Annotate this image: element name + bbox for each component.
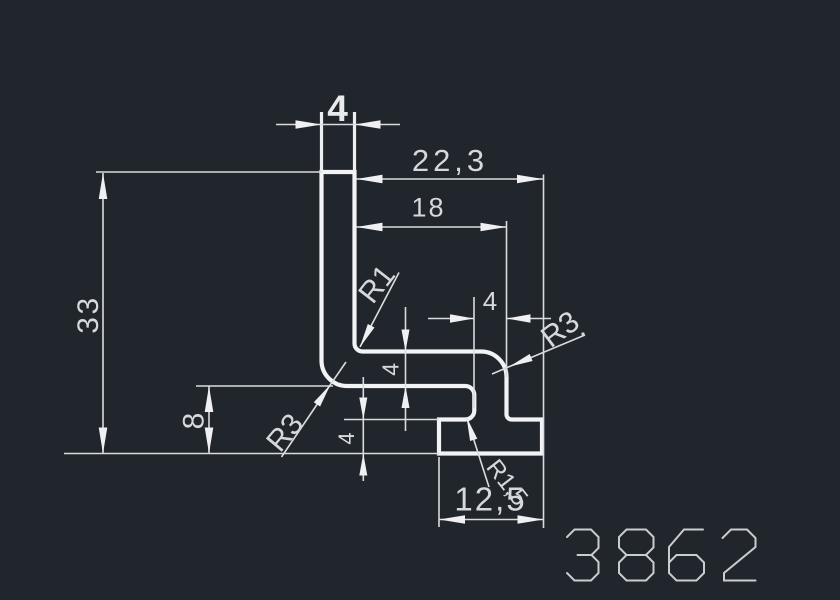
svg-text:4: 4 bbox=[334, 432, 359, 444]
svg-text:18: 18 bbox=[411, 192, 445, 222]
svg-text:33: 33 bbox=[72, 295, 105, 333]
svg-text:4: 4 bbox=[327, 88, 348, 129]
svg-text:4: 4 bbox=[483, 286, 497, 316]
svg-text:4: 4 bbox=[377, 363, 403, 376]
svg-text:22,3: 22,3 bbox=[412, 143, 488, 178]
svg-text:8: 8 bbox=[178, 413, 211, 430]
